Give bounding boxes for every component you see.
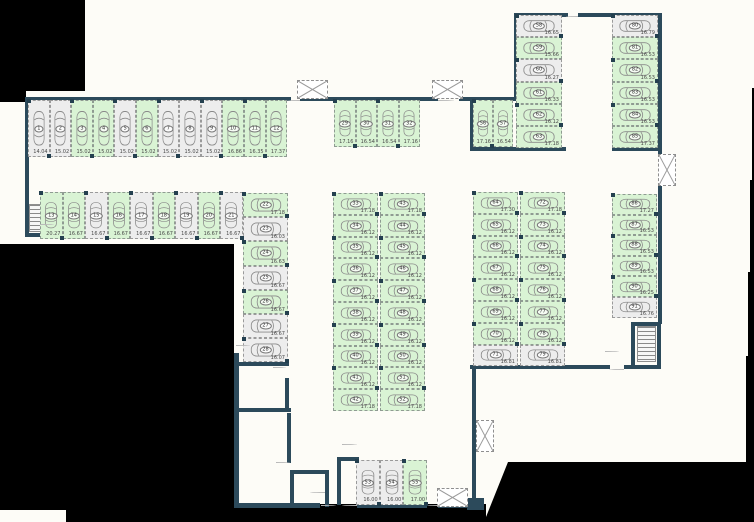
wall <box>631 322 635 368</box>
parking-stall-3[interactable]: 315.02 <box>71 100 93 157</box>
door-arc <box>342 444 357 445</box>
parking-stall-33[interactable]: 3317.18 <box>333 193 378 215</box>
stall-measurement: 16.79 <box>641 31 655 36</box>
parking-stall-64[interactable]: 6417.30 <box>473 192 518 214</box>
stall-measurement: 16.12 <box>501 317 515 322</box>
stall-measurement: 16.12 <box>501 230 515 235</box>
stall-measurement: 16.12 <box>501 339 515 344</box>
stall-measurement: 15.02 <box>55 150 69 155</box>
parking-stall-49[interactable]: 4916.12 <box>380 324 425 346</box>
black-region <box>0 91 26 102</box>
stall-measurement: 16.12 <box>361 383 375 388</box>
parking-stall-41[interactable]: 4116.12 <box>333 367 378 389</box>
stall-measurement: 16.12 <box>548 295 562 300</box>
stall-measurement: 20.27 <box>46 232 60 237</box>
wall <box>290 470 294 507</box>
stall-measurement: 16.12 <box>501 295 515 300</box>
parking-stall-10[interactable]: 1016.86 <box>222 100 244 157</box>
stall-measurement: 17.16 <box>477 140 491 145</box>
parking-stall-75[interactable]: 7516.12 <box>520 257 565 279</box>
parking-stall-78[interactable]: 7816.12 <box>520 323 565 345</box>
parking-stall-61[interactable]: 6116.33 <box>516 82 562 104</box>
stall-measurement: 14.04 <box>33 150 47 155</box>
door-arc <box>609 369 624 370</box>
stall-measurement: 16.81 <box>501 360 515 365</box>
parking-stall-82[interactable]: 8216.53 <box>612 59 658 81</box>
stall-measurement: 16.00 <box>363 498 377 503</box>
stall-measurement: 16.67 <box>271 308 285 313</box>
parking-stall-12[interactable]: 1217.37 <box>266 100 288 157</box>
parking-stall-45[interactable]: 4516.12 <box>380 237 425 259</box>
stall-measurement: 16.67 <box>69 232 83 237</box>
stall-measurement: 16.12 <box>361 318 375 323</box>
vent-shaft-symbol <box>658 154 676 186</box>
wall <box>657 322 661 368</box>
parking-stall-65[interactable]: 6516.12 <box>473 214 518 236</box>
parking-stall-16[interactable]: 1616.67 <box>108 192 131 239</box>
stall-measurement: 16.67 <box>181 232 195 237</box>
parking-stall-40[interactable]: 4016.12 <box>333 346 378 368</box>
stall-measurement: 16.12 <box>361 274 375 279</box>
stall-measurement: 16.67 <box>91 232 105 237</box>
parking-stall-72[interactable]: 7217.18 <box>520 192 565 214</box>
parking-stall-8[interactable]: 815.02 <box>179 100 201 157</box>
parking-stall-15[interactable]: 1516.67 <box>85 192 108 239</box>
stall-measurement: 16.07 <box>271 356 285 361</box>
parking-stall-36[interactable]: 3616.12 <box>333 258 378 280</box>
parking-stall-11[interactable]: 1116.35 <box>244 100 266 157</box>
parking-stall-32[interactable]: 3217.16 <box>399 100 421 147</box>
stall-measurement: 16.67 <box>204 232 218 237</box>
parking-stall-4[interactable]: 415.02 <box>93 100 115 157</box>
stall-measurement: 16.12 <box>408 231 422 236</box>
wall <box>325 470 329 507</box>
parking-stall-18[interactable]: 1816.67 <box>153 192 176 239</box>
stall-measurement: 16.53 <box>640 229 654 234</box>
stall-measurement: 15.02 <box>163 150 177 155</box>
parking-stall-56[interactable]: 5617.16 <box>473 100 493 147</box>
stall-measurement: 16.67 <box>226 232 240 237</box>
parking-stall-89[interactable]: 8916.53 <box>612 256 657 277</box>
stall-measurement: 16.67 <box>271 284 285 289</box>
parking-stall-14[interactable]: 1416.67 <box>63 192 86 239</box>
stall-measurement: 17.18 <box>408 209 422 214</box>
stall-measurement: 17.18 <box>361 209 375 214</box>
stall-measurement: 17.18 <box>408 405 422 410</box>
stall-measurement: 16.12 <box>361 231 375 236</box>
stall-measurement: 16.67 <box>136 232 150 237</box>
parking-stall-26[interactable]: 2616.67 <box>243 290 288 314</box>
parking-stall-83[interactable]: 8316.53 <box>612 82 658 104</box>
parking-stall-90[interactable]: 9016.25 <box>612 276 657 297</box>
black-region <box>746 356 754 464</box>
door-arc <box>427 505 439 506</box>
parking-stall-28[interactable]: 2816.07 <box>243 338 288 362</box>
stall-measurement: 16.12 <box>361 296 375 301</box>
wall <box>239 408 291 412</box>
stall-measurement: 16.54 <box>361 140 375 145</box>
parking-stall-73[interactable]: 7316.12 <box>520 214 565 236</box>
stall-measurement: 16.54 <box>497 140 511 145</box>
stall-measurement: 15.02 <box>184 150 198 155</box>
parking-stall-57[interactable]: 5716.54 <box>493 100 513 147</box>
wall <box>337 461 341 505</box>
parking-stall-27[interactable]: 2716.67 <box>243 314 288 338</box>
stall-measurement: 16.12 <box>548 317 562 322</box>
wall <box>290 470 329 474</box>
parking-stall-48[interactable]: 4816.12 <box>380 302 425 324</box>
vent-shaft-symbol <box>432 80 463 99</box>
stall-measurement: 16.54 <box>382 140 396 145</box>
parking-stall-69[interactable]: 6916.12 <box>473 301 518 323</box>
stall-measurement: 15.66 <box>545 53 559 58</box>
stall-measurement: 16.12 <box>501 251 515 256</box>
stall-measurement: 17.18 <box>271 211 285 216</box>
parking-stall-80[interactable]: 8016.79 <box>612 15 658 37</box>
parking-stall-50[interactable]: 5016.12 <box>380 346 425 368</box>
stall-measurement: 17.16 <box>339 140 353 145</box>
parking-stall-29[interactable]: 2917.16 <box>334 100 356 147</box>
parking-stall-31[interactable]: 3116.54 <box>377 100 399 147</box>
black-region <box>484 462 754 522</box>
stall-measurement: 16.12 <box>408 383 422 388</box>
stall-measurement: 16.12 <box>361 361 375 366</box>
parking-stall-77[interactable]: 7716.12 <box>520 301 565 323</box>
stall-measurement: 16.12 <box>408 340 422 345</box>
parking-stall-74[interactable]: 7416.12 <box>520 236 565 258</box>
stall-measurement: 16.12 <box>545 120 559 125</box>
parking-stall-44[interactable]: 4416.12 <box>380 215 425 237</box>
stall-measurement: 16.12 <box>408 274 422 279</box>
parking-stall-24[interactable]: 2416.63 <box>243 241 288 265</box>
parking-stall-79[interactable]: 7916.81 <box>520 345 565 367</box>
stall-measurement: 17.27 <box>640 209 654 214</box>
parking-stall-30[interactable]: 3016.54 <box>356 100 378 147</box>
stall-measurement: 16.53 <box>640 250 654 255</box>
parking-stall-52[interactable]: 5217.18 <box>380 389 425 411</box>
stall-measurement: 17.18 <box>548 208 562 213</box>
parking-stall-13[interactable]: 1320.27 <box>40 192 63 239</box>
parking-stall-38[interactable]: 3816.12 <box>333 302 378 324</box>
wall <box>624 365 661 369</box>
parking-stall-63[interactable]: 6317.18 <box>516 126 562 148</box>
staircase-symbol <box>637 326 656 362</box>
stall-measurement: 16.53 <box>641 76 655 81</box>
parking-stall-51[interactable]: 5116.12 <box>380 367 425 389</box>
stall-measurement: 16.65 <box>545 31 559 36</box>
stall-measurement: 16.33 <box>545 98 559 103</box>
black-region <box>748 272 754 356</box>
parking-stall-62[interactable]: 6216.12 <box>516 104 562 126</box>
parking-floor-plan: 114.04215.02315.02415.02515.02615.02715.… <box>0 0 754 522</box>
door-arc <box>342 505 357 506</box>
parking-stall-5[interactable]: 515.02 <box>114 100 136 157</box>
stall-measurement: 16.35 <box>249 150 263 155</box>
wall <box>25 233 41 237</box>
parking-stall-43[interactable]: 4317.18 <box>380 193 425 215</box>
stall-measurement: 17.18 <box>545 142 559 147</box>
wall <box>234 353 239 508</box>
parking-stall-2[interactable]: 215.02 <box>50 100 72 157</box>
stall-measurement: 16.63 <box>271 260 285 265</box>
parking-stall-6[interactable]: 615.02 <box>136 100 158 157</box>
stall-measurement: 16.67 <box>271 332 285 337</box>
parking-stall-7[interactable]: 715.02 <box>158 100 180 157</box>
parking-stall-42[interactable]: 4217.18 <box>333 389 378 411</box>
stall-measurement: 15.02 <box>98 150 112 155</box>
stall-measurement: 17.37 <box>641 142 655 147</box>
door-arc <box>605 351 619 352</box>
stall-measurement: 16.53 <box>641 53 655 58</box>
stall-measurement: 16.12 <box>501 273 515 278</box>
parking-stall-37[interactable]: 3716.12 <box>333 280 378 302</box>
parking-stall-47[interactable]: 4716.12 <box>380 280 425 302</box>
wall <box>285 378 289 410</box>
stall-measurement: 16.12 <box>408 252 422 257</box>
stall-measurement: 16.25 <box>640 291 654 296</box>
parking-stall-86[interactable]: 8617.27 <box>612 194 657 215</box>
stall-measurement: 17.30 <box>501 208 515 213</box>
parking-stall-35[interactable]: 3516.12 <box>333 237 378 259</box>
stall-measurement: 16.12 <box>361 340 375 345</box>
wall <box>234 503 320 508</box>
parking-stall-84[interactable]: 8416.53 <box>612 104 658 126</box>
stall-measurement: 16.86 <box>228 150 242 155</box>
door-arc <box>40 224 54 225</box>
parking-stall-17[interactable]: 1716.67 <box>130 192 153 239</box>
parking-stall-22[interactable]: 2217.18 <box>243 193 288 217</box>
stall-measurement: 16.67 <box>159 232 173 237</box>
door-arc <box>273 367 286 368</box>
parking-stall-39[interactable]: 3916.12 <box>333 324 378 346</box>
stall-measurement: 16.53 <box>640 270 654 275</box>
parking-stall-85[interactable]: 8517.37 <box>612 126 658 148</box>
vent-shaft-symbol <box>297 80 328 99</box>
stall-measurement: 16.12 <box>548 339 562 344</box>
parking-stall-60[interactable]: 6016.27 <box>516 59 562 81</box>
stall-measurement: 17.37 <box>271 150 285 155</box>
wall <box>658 185 662 324</box>
door-arc <box>438 100 454 101</box>
stall-measurement: 16.03 <box>271 235 285 240</box>
stall-measurement: 16.12 <box>408 318 422 323</box>
parking-stall-21[interactable]: 2116.67 <box>220 192 243 239</box>
parking-stall-88[interactable]: 8816.53 <box>612 235 657 256</box>
parking-stall-76[interactable]: 7616.12 <box>520 279 565 301</box>
parking-stall-59[interactable]: 5915.66 <box>516 37 562 59</box>
stall-measurement: 16.81 <box>548 360 562 365</box>
parking-stall-91[interactable]: 9116.76 <box>612 297 657 318</box>
parking-stall-67[interactable]: 6716.12 <box>473 257 518 279</box>
stall-measurement: 16.27 <box>545 76 559 81</box>
parking-stall-1[interactable]: 114.04 <box>28 100 50 157</box>
stall-measurement: 15.02 <box>120 150 134 155</box>
stall-measurement: 17.00 <box>411 498 425 503</box>
black-region <box>0 0 85 91</box>
stall-measurement: 16.12 <box>548 230 562 235</box>
parking-stall-70[interactable]: 7016.12 <box>473 323 518 345</box>
wall <box>287 413 291 463</box>
parking-stall-68[interactable]: 6816.12 <box>473 279 518 301</box>
stall-measurement: 16.12 <box>408 361 422 366</box>
stall-measurement: 15.02 <box>141 150 155 155</box>
parking-stall-19[interactable]: 1916.67 <box>175 192 198 239</box>
parking-stall-71[interactable]: 7116.81 <box>473 345 518 367</box>
stall-measurement: 16.76 <box>640 312 654 317</box>
stall-measurement: 16.12 <box>361 252 375 257</box>
door-arc <box>310 492 325 493</box>
parking-stall-53[interactable]: 5316.00 <box>356 460 380 505</box>
stall-measurement: 15.02 <box>76 150 90 155</box>
stall-measurement: 16.53 <box>641 120 655 125</box>
parking-stall-25[interactable]: 2516.67 <box>243 266 288 290</box>
stall-measurement: 16.12 <box>548 251 562 256</box>
parking-stall-81[interactable]: 8116.53 <box>612 37 658 59</box>
parking-stall-23[interactable]: 2316.03 <box>243 217 288 241</box>
parking-stall-58[interactable]: 5816.65 <box>516 15 562 37</box>
parking-stall-9[interactable]: 915.02 <box>201 100 223 157</box>
parking-stall-66[interactable]: 6616.12 <box>473 236 518 258</box>
stall-measurement: 17.16 <box>404 140 418 145</box>
door-arc <box>321 505 336 506</box>
black-region <box>0 244 234 510</box>
vent-shaft-symbol <box>437 488 468 507</box>
stall-measurement: 17.18 <box>361 405 375 410</box>
parking-stall-20[interactable]: 2016.67 <box>198 192 221 239</box>
stall-measurement: 16.53 <box>641 98 655 103</box>
stall-measurement: 16.00 <box>387 498 401 503</box>
vent-shaft-symbol <box>476 420 494 452</box>
stall-measurement: 16.12 <box>408 296 422 301</box>
parking-stall-87[interactable]: 8716.53 <box>612 215 657 236</box>
stall-measurement: 16.12 <box>548 273 562 278</box>
stall-measurement: 15.02 <box>206 150 220 155</box>
stall-measurement: 16.67 <box>114 232 128 237</box>
parking-stall-55[interactable]: 5517.00 <box>403 460 427 505</box>
black-region <box>750 180 754 272</box>
parking-stall-54[interactable]: 5416.00 <box>380 460 404 505</box>
parking-stall-46[interactable]: 4616.12 <box>380 258 425 280</box>
wall <box>239 362 289 366</box>
parking-stall-34[interactable]: 3416.12 <box>333 215 378 237</box>
